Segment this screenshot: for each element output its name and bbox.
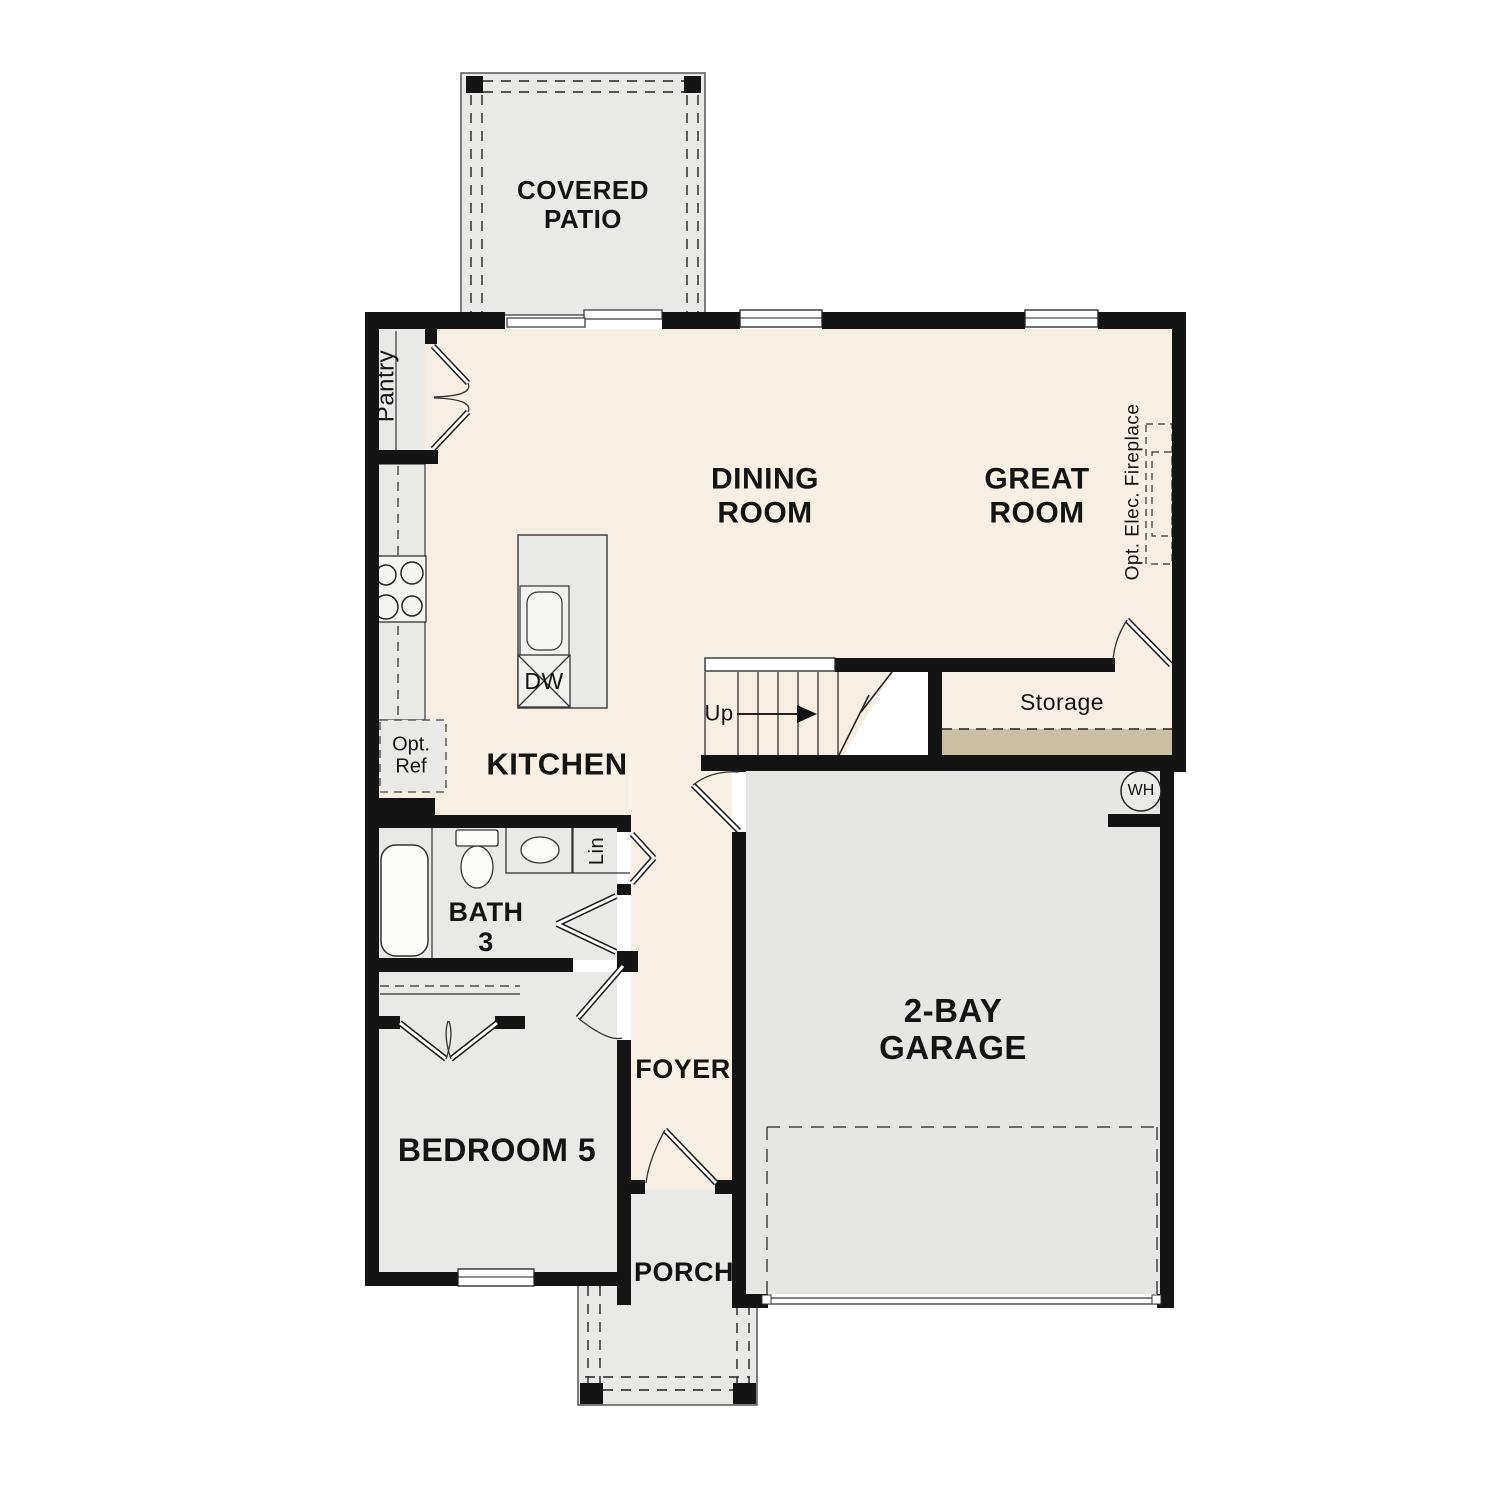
toilet-bowl bbox=[461, 846, 493, 888]
room-label-foyer: FOYER bbox=[635, 1054, 731, 1084]
patio-slider-panel bbox=[507, 318, 585, 327]
room-label-bedroom-5: BEDROOM 5 bbox=[398, 1133, 596, 1169]
note-opt-ref: Opt. Ref bbox=[392, 734, 430, 779]
patio-post bbox=[466, 76, 483, 93]
note-opt-elec-fireplace: Opt. Elec. Fireplace bbox=[1122, 404, 1143, 581]
foyer-hall-floor bbox=[631, 757, 732, 1190]
room-label-garage: 2-BAY GARAGE bbox=[879, 993, 1027, 1067]
porch-slab bbox=[578, 1282, 757, 1405]
storage-step bbox=[942, 729, 1172, 757]
fixture-label-dishwasher: DW bbox=[524, 669, 563, 695]
room-label-pantry: Pantry bbox=[374, 350, 401, 422]
patio-post bbox=[684, 76, 701, 93]
floor-plan-drawing bbox=[0, 0, 1500, 1500]
stairs-up-label: Up bbox=[704, 702, 733, 727]
porch-post bbox=[580, 1383, 603, 1404]
fixture-label-water-heater: WH bbox=[1128, 782, 1155, 800]
room-label-dining-room: DINING ROOM bbox=[711, 462, 819, 529]
room-label-storage: Storage bbox=[1020, 690, 1104, 716]
vanity-sink bbox=[521, 837, 559, 863]
room-label-bath-3: BATH 3 bbox=[449, 897, 524, 957]
patio-slider-panel bbox=[584, 310, 662, 319]
garage-door bbox=[762, 1295, 1161, 1304]
room-label-covered-patio: COVERED PATIO bbox=[517, 176, 649, 234]
room-label-great-room: GREAT ROOM bbox=[984, 462, 1089, 529]
room-label-linen: Lin bbox=[586, 837, 608, 865]
bathtub bbox=[381, 845, 428, 956]
stair-railing bbox=[705, 658, 835, 671]
room-label-porch: PORCH bbox=[634, 1257, 734, 1287]
toilet-tank bbox=[456, 830, 498, 846]
porch-post bbox=[733, 1383, 756, 1404]
room-label-kitchen: KITCHEN bbox=[486, 748, 627, 783]
floor-fills bbox=[379, 73, 1172, 1405]
floor-plan: COVERED PATIO DINING ROOM GREAT ROOM Opt… bbox=[0, 0, 1500, 1500]
